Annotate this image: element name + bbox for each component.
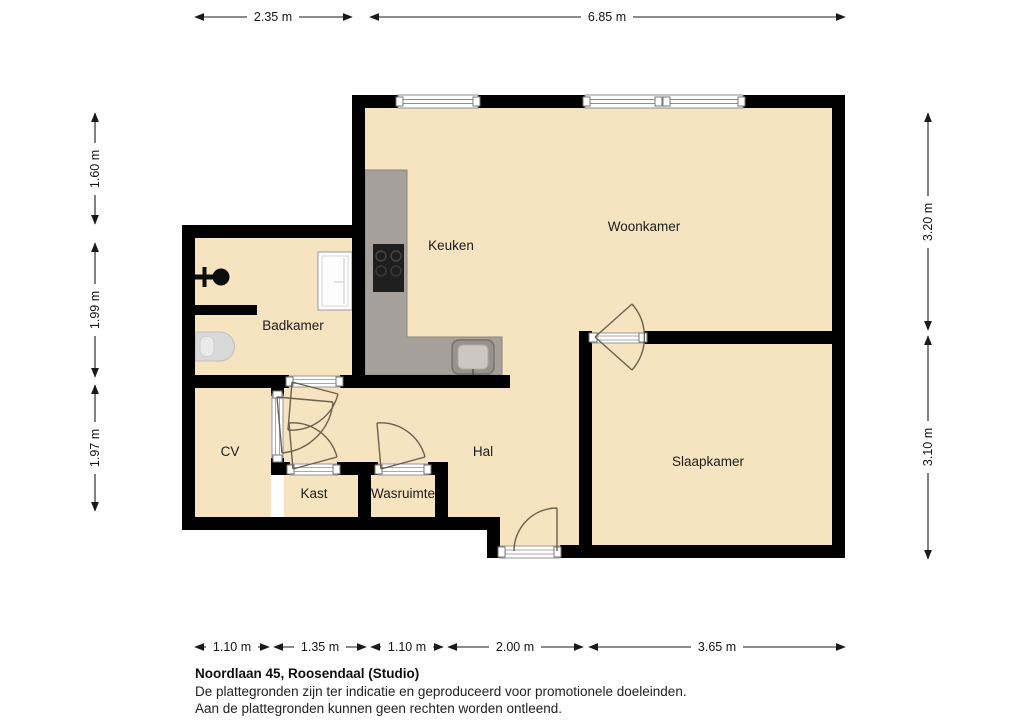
floorplan-image: Keuken Woonkamer Badkamer CV Hal Kast Wa… — [0, 0, 1024, 724]
svg-text:3.65 m: 3.65 m — [698, 640, 736, 654]
room-label-hal: Hal — [473, 444, 493, 459]
disclaimer-line-2: Aan de plattegronden kunnen geen rechten… — [195, 701, 562, 716]
svg-text:1.60 m: 1.60 m — [88, 150, 102, 188]
dimension-top-1: 2.35 m — [195, 9, 352, 25]
dimension-left-1: 1.60 m — [87, 113, 103, 224]
svg-text:1.10 m: 1.10 m — [388, 640, 426, 654]
svg-text:2.35 m: 2.35 m — [254, 10, 292, 24]
svg-text:1.97 m: 1.97 m — [88, 429, 102, 467]
room-label-wasruimte: Wasruimte — [371, 486, 435, 501]
room-label-cv: CV — [221, 444, 240, 459]
bathtub-icon — [195, 332, 234, 361]
floorplan-canvas: Keuken Woonkamer Badkamer CV Hal Kast Wa… — [0, 0, 1024, 724]
room-label-keuken: Keuken — [428, 238, 474, 253]
window-woonkamer — [583, 95, 745, 108]
svg-text:1.10 m: 1.10 m — [213, 640, 251, 654]
dimension-bottom-2: 1.35 m — [274, 639, 366, 655]
floor-slaapkamer — [592, 344, 832, 545]
washbasin-icon — [318, 252, 352, 310]
svg-text:3.10 m: 3.10 m — [921, 428, 935, 466]
dimension-bottom-4: 2.00 m — [448, 639, 583, 655]
dimension-bottom-3: 1.10 m — [371, 639, 443, 655]
footer: Noordlaan 45, Roosendaal (Studio) De pla… — [195, 666, 687, 716]
kitchen-sink-icon — [452, 340, 494, 376]
svg-text:6.85 m: 6.85 m — [588, 10, 626, 24]
dimension-top-2: 6.85 m — [370, 9, 845, 25]
cooktop-icon — [373, 244, 404, 292]
svg-text:1.35 m: 1.35 m — [301, 640, 339, 654]
window-keuken — [396, 95, 480, 108]
dimension-bottom-1: 1.10 m — [195, 639, 269, 655]
svg-text:1.99 m: 1.99 m — [88, 291, 102, 329]
svg-text:3.20 m: 3.20 m — [921, 203, 935, 241]
room-label-kast: Kast — [300, 486, 327, 501]
room-label-badkamer: Badkamer — [262, 318, 324, 333]
dimension-bottom-5: 3.65 m — [589, 639, 845, 655]
address-title: Noordlaan 45, Roosendaal (Studio) — [195, 666, 419, 681]
dimension-right-1: 3.20 m — [920, 113, 936, 330]
room-label-woonkamer: Woonkamer — [608, 219, 681, 234]
svg-text:2.00 m: 2.00 m — [496, 640, 534, 654]
dimension-left-2: 1.99 m — [87, 243, 103, 377]
room-label-slaapkamer: Slaapkamer — [672, 454, 745, 469]
dimension-left-3: 1.97 m — [87, 385, 103, 511]
dimension-right-2: 3.10 m — [920, 336, 936, 559]
shower-partition-wall — [195, 305, 257, 315]
disclaimer-line-1: De plattegronden zijn ter indicatie en g… — [195, 684, 687, 699]
